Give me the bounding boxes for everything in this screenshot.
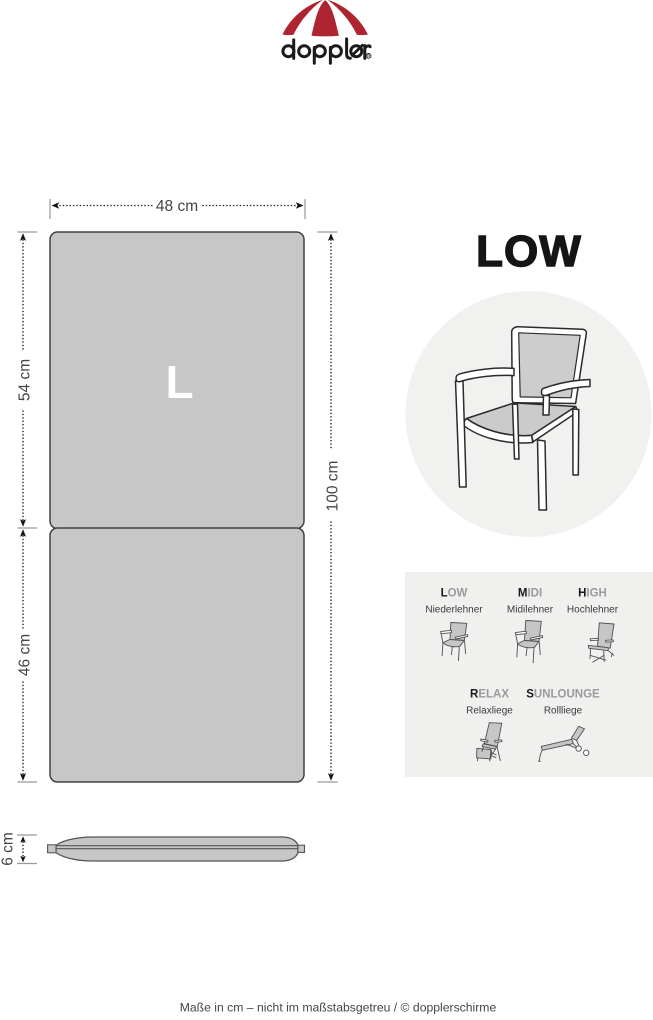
svg-text:SUNLOUNGE: SUNLOUNGE xyxy=(526,689,600,701)
svg-text:LOW: LOW xyxy=(441,588,468,600)
svg-text:Rollliege: Rollliege xyxy=(544,706,583,717)
svg-text:Relaxliege: Relaxliege xyxy=(466,706,513,717)
svg-text:LOW: LOW xyxy=(476,227,582,276)
svg-text:MIDI: MIDI xyxy=(518,588,542,600)
svg-text:Midilehner: Midilehner xyxy=(507,605,554,616)
svg-text:L: L xyxy=(166,356,194,408)
svg-text:HIGH: HIGH xyxy=(578,588,607,600)
svg-text:Niederlehner: Niederlehner xyxy=(425,605,483,616)
svg-text:Hochlehner: Hochlehner xyxy=(567,605,619,616)
svg-text:54 cm: 54 cm xyxy=(17,359,34,401)
svg-text:100 cm: 100 cm xyxy=(325,461,342,512)
svg-text:Maße in cm – nicht im maßstabs: Maße in cm – nicht im maßstabsgetreu / ©… xyxy=(180,1001,497,1015)
svg-text:48 cm: 48 cm xyxy=(156,198,198,215)
svg-text:RELAX: RELAX xyxy=(470,689,509,701)
svg-text:46 cm: 46 cm xyxy=(17,634,34,676)
svg-text:6 cm: 6 cm xyxy=(0,832,17,866)
